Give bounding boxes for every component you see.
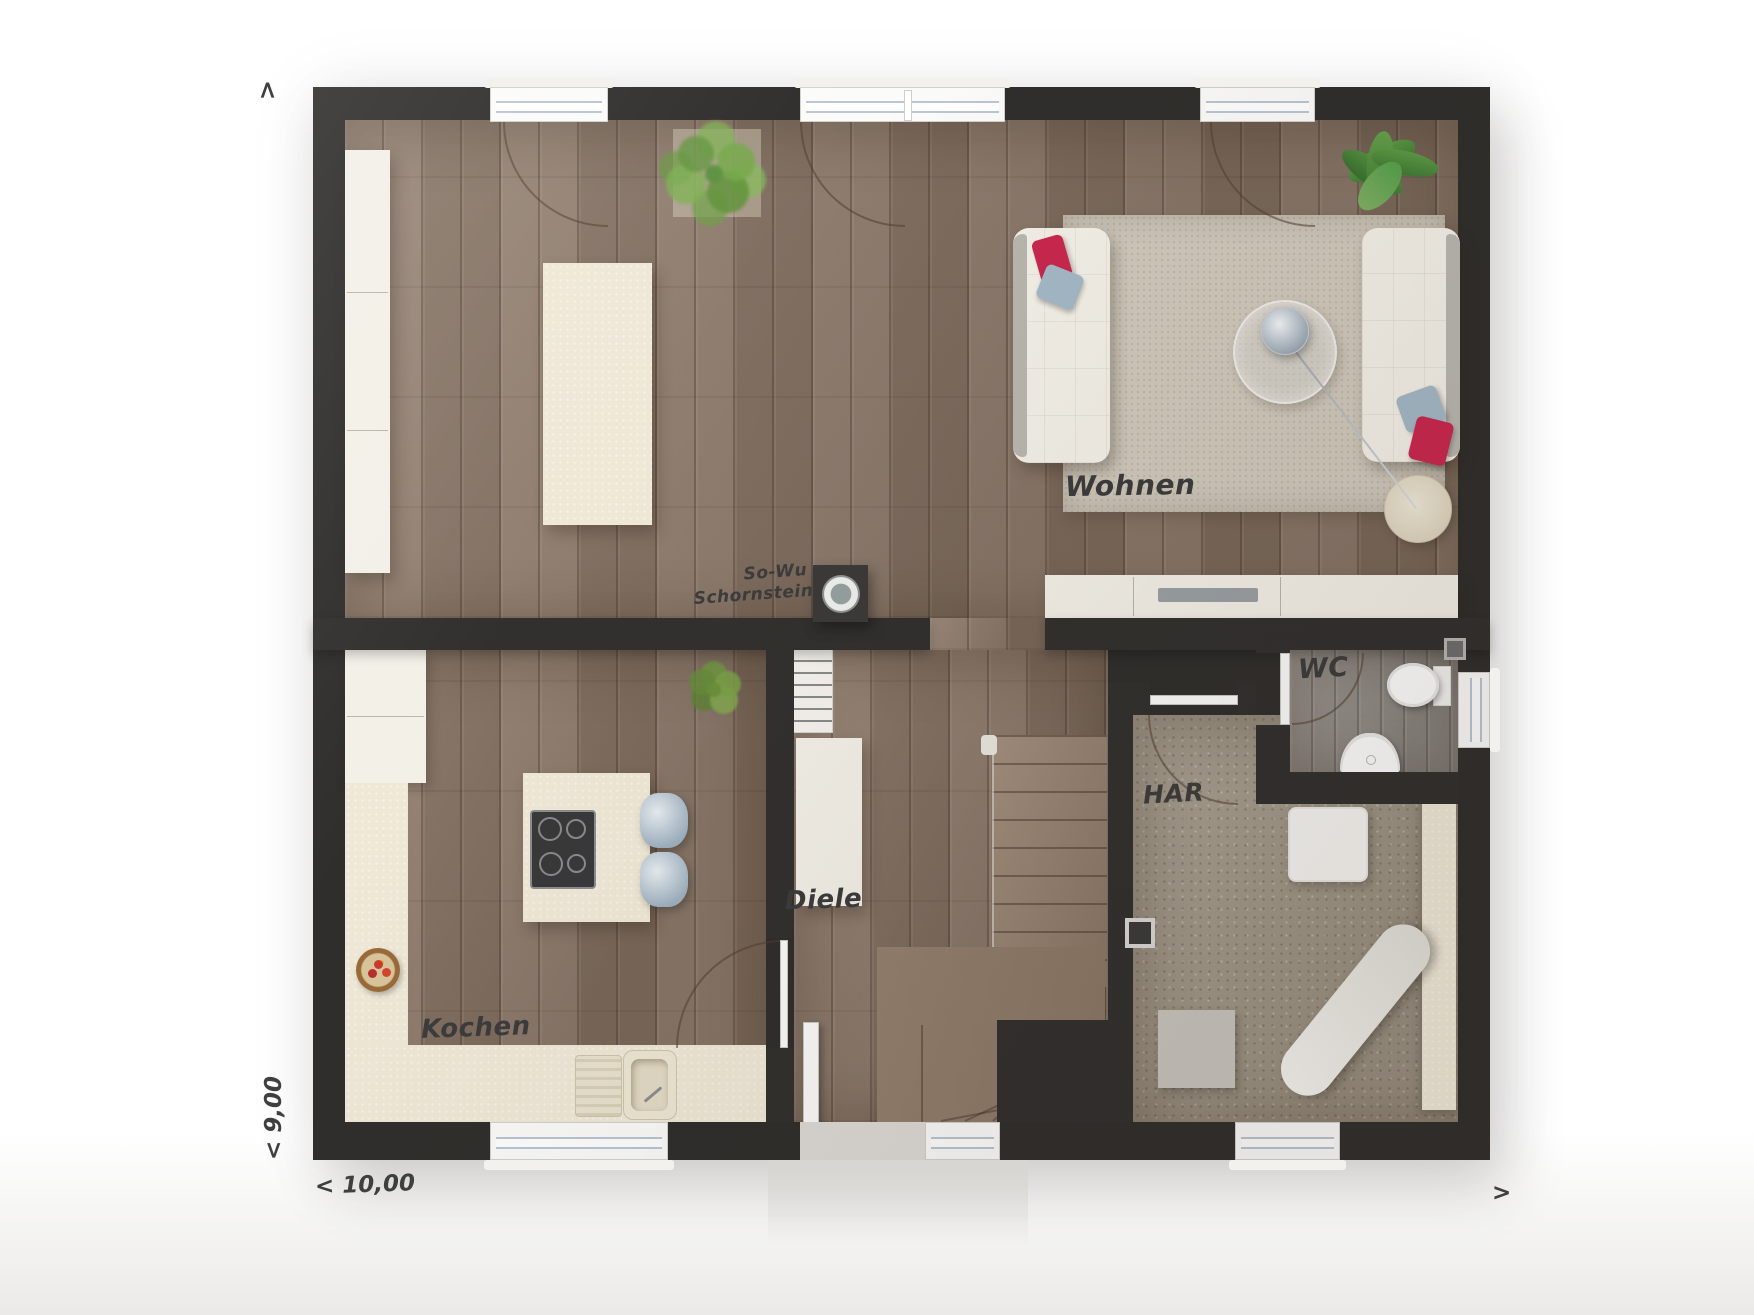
sofa-backrest <box>1013 234 1027 457</box>
entrance-threshold <box>800 1122 925 1160</box>
window-glass <box>496 101 602 113</box>
window-sill <box>1229 1160 1346 1170</box>
chimney-label: So-Wu Schornstein <box>692 560 810 610</box>
wc-vent-shaft <box>1444 638 1466 660</box>
window-glass <box>931 1137 994 1149</box>
burner <box>538 817 562 841</box>
cooktop <box>530 810 596 889</box>
kitchen-sink-basin <box>623 1050 677 1120</box>
hall-radiator-shelf <box>789 638 833 733</box>
lowboard-seam <box>1133 577 1134 616</box>
laundry-box <box>1158 1010 1235 1088</box>
room-label-wohnen: Wohnen <box>1065 468 1196 503</box>
room-label-diele: Diele <box>785 884 863 917</box>
hall-wardrobe <box>796 738 862 906</box>
tv-lowboard <box>1045 575 1458 618</box>
window-sill <box>484 1160 674 1170</box>
arc-lamp-shade <box>1261 307 1309 355</box>
kitchen-tall-cabinet <box>345 650 426 783</box>
floor-passage <box>930 618 1045 650</box>
wall-kitchen-hall-lower <box>766 1048 794 1122</box>
sideboard-seam <box>347 292 388 293</box>
dimension-width-label: < 10,00 <box>315 1170 416 1199</box>
chimney-flue-icon <box>822 575 860 613</box>
sink-bowl <box>631 1059 668 1111</box>
entrance-sidelight <box>925 1122 1000 1160</box>
door-mullion <box>904 90 912 121</box>
arc-lamp-base <box>1384 475 1452 543</box>
window-glass <box>806 101 999 113</box>
wall-wc-bottom <box>1256 772 1458 804</box>
dining-sideboard <box>345 150 390 573</box>
window-wc <box>1458 672 1490 748</box>
window-glass <box>1206 101 1309 113</box>
window-glass <box>1470 678 1482 742</box>
window-utility <box>1235 1122 1340 1160</box>
kitchen-counter-left <box>345 783 408 1045</box>
stair-handrail-cap <box>981 735 997 755</box>
plant-tree <box>705 165 723 183</box>
burner <box>567 854 586 873</box>
utility-door-leaf <box>1150 695 1238 705</box>
window-top-left <box>490 87 608 122</box>
building-outline: Wohnen Kochen Diele WC HAR So-Wu Schorns… <box>313 87 1490 1160</box>
lowboard-seam <box>1280 577 1281 616</box>
window-glass <box>1241 1137 1334 1149</box>
fruit <box>374 960 383 969</box>
plant-kitchen <box>707 683 721 697</box>
wc-door-leaf <box>1280 653 1290 725</box>
wall-utility-top-right <box>1238 683 1256 715</box>
kitchen-island <box>523 773 650 922</box>
winder-tread-line <box>921 1025 923 1122</box>
washing-machine <box>1288 807 1368 882</box>
floor-plan-page: < < 9,00 < 10,00 > <box>0 0 1754 1315</box>
kitchen-door-leaf <box>780 940 788 1048</box>
entrance-door-leaf <box>803 1022 819 1126</box>
room-label-kochen: Kochen <box>421 1011 532 1045</box>
entrance-terrace <box>768 1160 1028 1245</box>
window-sill <box>1490 668 1500 752</box>
wall-dining-kitchen <box>313 618 930 650</box>
room-label-har: HAR <box>1142 777 1204 809</box>
fruit-bowl <box>356 948 400 992</box>
plant-palm-living <box>1373 157 1389 173</box>
electrical-panel <box>1125 918 1155 948</box>
window-glass <box>496 1137 662 1149</box>
dining-table <box>543 263 652 525</box>
room-label-wc: WC <box>1297 652 1349 686</box>
burner <box>566 819 586 839</box>
dimension-height-label: < 9,00 <box>261 1076 287 1160</box>
wall-utility-top-left <box>1108 683 1150 715</box>
bar-stool <box>640 793 688 848</box>
toilet <box>1387 663 1439 707</box>
sink-drain-icon <box>1366 755 1376 765</box>
window-top-right <box>1200 87 1315 122</box>
kitchen-counter-bottom <box>345 1045 766 1122</box>
cabinet-seam <box>347 716 424 717</box>
tv-panel <box>1158 588 1258 602</box>
kitchen-sink-drainer <box>575 1055 622 1117</box>
bar-stool <box>640 852 688 907</box>
dimension-arrow-right: > <box>1492 1180 1511 1206</box>
terrace-door-top-center <box>800 87 1005 122</box>
burner <box>539 852 563 876</box>
sideboard-seam <box>347 430 388 431</box>
wall-under-stairs <box>997 1020 1133 1122</box>
wall-wc-left-upper <box>1256 618 1290 653</box>
window-kitchen <box>490 1122 668 1160</box>
dimension-arrow-up: < <box>254 80 282 100</box>
